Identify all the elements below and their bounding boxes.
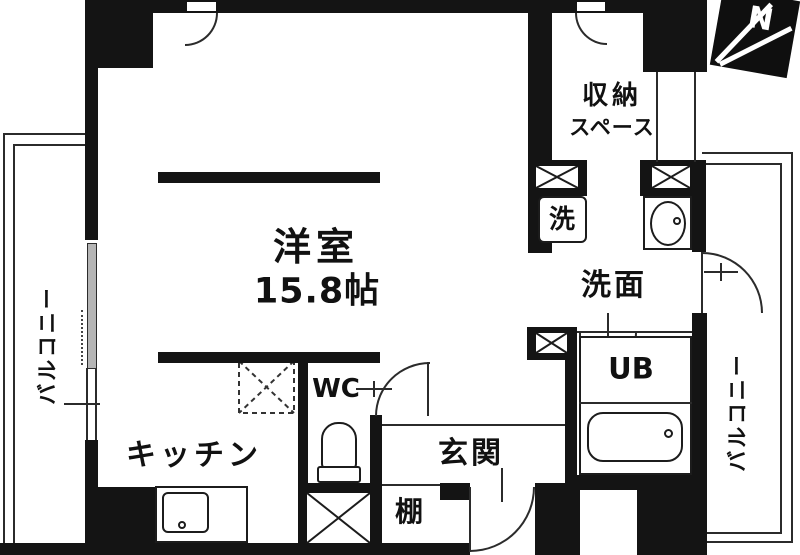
- shelf-nook-top-line: [382, 484, 440, 486]
- wall-top-left-block: [85, 0, 153, 68]
- wall-shaft-right: [370, 483, 382, 543]
- label-wc: WC: [312, 376, 360, 402]
- right-balcony-rail-inner: [702, 163, 782, 534]
- wall-alcove-left-block: [535, 483, 580, 555]
- pillar-cross-1: [536, 166, 578, 188]
- label-storage-line2: スペース: [569, 118, 654, 139]
- corridor-right-line-2: [694, 72, 696, 162]
- wc-swing-tick: [373, 381, 375, 397]
- label-laundry: 洗: [549, 207, 575, 233]
- label-kitchen: キッチン: [126, 441, 262, 471]
- partition-bar-upper: [158, 172, 380, 183]
- kitchen-sink-drain: [178, 521, 186, 529]
- wall-top-right-block: [643, 0, 707, 72]
- ub-divider-line: [579, 402, 692, 404]
- label-shelf: 棚: [395, 498, 423, 526]
- label-main-room-area: 15.8帖: [254, 275, 380, 310]
- label-unit-bath: UB: [608, 355, 654, 384]
- corridor-right-line-1: [656, 72, 658, 162]
- wall-left-upper: [85, 68, 98, 240]
- wc-door-arc: [375, 362, 430, 416]
- compass-square: N: [710, 0, 800, 78]
- label-washroom: 洗面: [581, 271, 647, 301]
- floor-plan: N 洋室 15.8帖 収納 スペース 洗 洗面 UB 玄関 棚 キッチン WC …: [0, 0, 800, 555]
- wall-top-2: [218, 0, 575, 13]
- shaft-cross-box: [307, 493, 370, 543]
- label-balcony-right: バルコニー: [728, 352, 749, 472]
- compass: N: [705, 0, 800, 90]
- window-line-left: [86, 368, 88, 440]
- wall-top-1: [153, 0, 185, 13]
- washbasin-bowl: [650, 201, 686, 246]
- wall-ub-left: [565, 360, 577, 483]
- balcony-window-pane: [87, 243, 97, 369]
- window-dotted-line: [81, 310, 83, 365]
- compass-north-label: N: [745, 0, 776, 39]
- wall-wc-right: [370, 415, 382, 483]
- compass-arrow-icon: N: [710, 0, 800, 78]
- label-entrance: 玄関: [438, 439, 504, 469]
- refrigerator-space-mark: [238, 360, 295, 414]
- pillar-cross-2: [652, 166, 690, 188]
- wall-entrance-stub: [440, 483, 470, 500]
- entrance-step-line: [382, 424, 565, 426]
- wall-top-3: [607, 0, 643, 13]
- entrance-door-arc: [470, 487, 535, 552]
- storage-door-leaf: [575, 0, 607, 13]
- washbasin-faucet: [673, 217, 681, 225]
- label-balcony-left: バルコニー: [38, 285, 59, 405]
- wall-bottom-band: [0, 543, 470, 555]
- wall-right-upper: [692, 160, 706, 252]
- main-room-door-arc: [185, 13, 218, 46]
- storage-door-arc: [575, 13, 607, 45]
- wall-bottom-left-block: [85, 487, 155, 543]
- bathtub-drain: [664, 429, 673, 438]
- toilet-bowl: [321, 422, 357, 470]
- wall-shaft-top: [307, 483, 370, 493]
- label-storage-line1: 収納: [582, 83, 642, 109]
- pillar-cross-3: [536, 333, 567, 353]
- partition-bar-lower: [158, 352, 380, 363]
- main-room-door-leaf: [185, 0, 218, 13]
- window-line-right: [95, 368, 97, 440]
- wall-corridor-left-upper: [528, 13, 552, 160]
- label-main-room: 洋室: [273, 228, 359, 266]
- toilet-base: [317, 466, 361, 483]
